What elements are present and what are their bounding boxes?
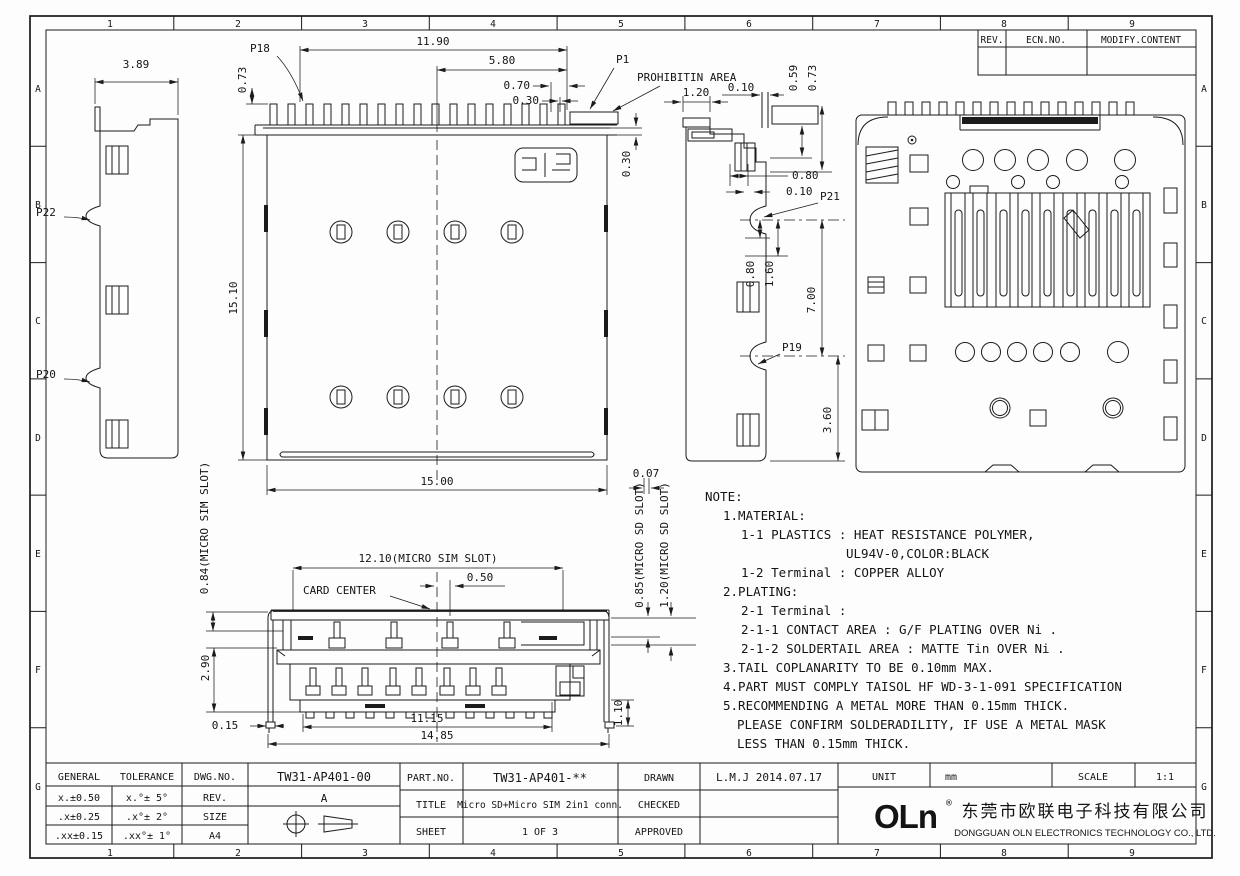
tb-size-value: A4	[209, 831, 221, 842]
zone-col: 1	[107, 848, 113, 859]
zone-row: A	[35, 84, 41, 95]
tb-drawn-value: L.M.J 2014.07.17	[716, 771, 822, 784]
label-p18: P18	[250, 42, 270, 55]
note-line: 1.MATERIAL:	[723, 508, 806, 523]
dim-r700: 7.00	[805, 287, 818, 314]
zone-col: 7	[874, 19, 880, 30]
tb-dwg-label: DWG.NO.	[194, 772, 236, 783]
zone-row: C	[1201, 316, 1207, 327]
label-p19: P19	[782, 341, 802, 354]
logo-registered-mark: ®	[946, 798, 952, 809]
tb-tolerance: TOLERANCE	[120, 772, 174, 783]
dim-sim-width: 12.10(MICRO SIM SLOT)	[358, 552, 497, 565]
zone-row: G	[1201, 782, 1207, 793]
dim-f007: 0.07	[633, 467, 660, 480]
tb-sheet-value: 1 OF 3	[522, 827, 558, 838]
engineering-drawing: 1 2 3 4 5 6 7 8 9 1 2 3 4 5 6 7 8 9 A B …	[0, 0, 1240, 876]
prohibit-hatch-side	[683, 118, 710, 127]
mount-pads	[862, 155, 1177, 440]
tb-general: GENERAL	[58, 772, 100, 783]
dim-r080b: 0.80	[744, 261, 757, 288]
view-bottom	[856, 102, 1185, 472]
tb-checked-label: CHECKED	[638, 800, 680, 811]
zone-col: 3	[362, 19, 368, 30]
zone-row: F	[1201, 665, 1207, 676]
zone-row: D	[35, 433, 41, 444]
tb-unit-value: mm	[945, 772, 957, 783]
note-line: PLEASE CONFIRM SOLDERADILITY, IF USE A M…	[737, 717, 1106, 732]
dim-hatch-width: 1.20	[683, 86, 710, 99]
note-line: 3.TAIL COPLANARITY TO BE 0.10mm MAX.	[723, 660, 994, 675]
zone-labels-left: A B C D E F G	[35, 84, 41, 793]
dim-pin-half: 5.80	[489, 54, 516, 67]
note-line: 2-1 Terminal :	[741, 603, 846, 618]
contact-holes-upper	[947, 150, 1136, 189]
zone-row: E	[1201, 549, 1207, 560]
zone-row: F	[35, 665, 41, 676]
tb-sheet-label: SHEET	[416, 827, 446, 838]
sim-pins	[329, 622, 515, 648]
terminal-block	[945, 186, 1150, 307]
logo-text: OLn	[874, 798, 937, 835]
dim-f1115: 11.15	[410, 712, 443, 725]
zone-col: 3	[362, 848, 368, 859]
zone-col: 8	[1001, 19, 1007, 30]
dim-pin-a: 0.70	[504, 79, 531, 92]
ecn-header: ECN.NO.	[1026, 35, 1066, 46]
tb-title-label: TITLE	[416, 800, 446, 811]
view-front: 12.10(MICRO SIM SLOT) 0.50 CARD CENTER 0…	[198, 462, 696, 748]
zone-col: 7	[874, 848, 880, 859]
dim-pin-b: 0.30	[513, 94, 540, 107]
zone-labels-right: A B C D E F G	[1201, 84, 1207, 793]
dim-body-height: 15.10	[227, 281, 240, 314]
dim-h059: 0.59	[787, 65, 800, 92]
view-right-side: 1.20 0.10 0.59 0.73 0.80 0.10 P21 0.80 1…	[664, 65, 845, 461]
title-block: GENERAL TOLERANCE x.±0.50 x.°± 5° .x±0.2…	[46, 763, 1216, 844]
dim-f015: 0.15	[212, 719, 239, 732]
tb-drawn-label: DRAWN	[644, 773, 674, 784]
prohibit-hatch-top	[570, 112, 618, 124]
edge-notches	[264, 205, 608, 435]
dim-edge-030: 0.30	[620, 151, 633, 178]
dim-r080a: 0.80	[792, 169, 819, 182]
tb-scale-label: SCALE	[1078, 772, 1108, 783]
drawing-sheet: 1 2 3 4 5 6 7 8 9 1 2 3 4 5 6 7 8 9 A B …	[0, 0, 1240, 876]
tb-tol-lin1: x.±0.50	[58, 793, 100, 804]
note-line: 2-1-1 CONTACT AREA : G/F PLATING OVER Ni…	[741, 622, 1057, 637]
company-logo: OLn ® 东莞市欧联电子科技有限公司 DONGGUAN OLN ELECTRO…	[874, 798, 1216, 839]
note-line: 2.PLATING:	[723, 584, 798, 599]
dim-off050: 0.50	[467, 571, 494, 584]
view-left-side: 3.89 P22 P20	[36, 58, 178, 458]
plan-holes	[330, 221, 523, 408]
notes-block: NOTE: 1.MATERIAL: 1-1 PLASTICS : HEAT RE…	[705, 489, 1122, 751]
dim-f1485: 14.85	[420, 729, 453, 742]
zone-col: 6	[746, 848, 752, 859]
note-line: NOTE:	[705, 489, 743, 504]
zone-row: G	[35, 782, 41, 793]
dim-hatch-gap: 0.10	[728, 81, 755, 94]
modify-header: MODIFY.CONTENT	[1101, 35, 1181, 46]
zone-col: 6	[746, 19, 752, 30]
dim-sd-height1: 0.85(MICRO SD SLOT)	[633, 482, 646, 608]
zone-row: A	[1201, 84, 1207, 95]
note-line: 2-1-2 SOLDERTAIL AREA : MATTE Tin OVER N…	[741, 641, 1065, 656]
zone-row: B	[1201, 200, 1207, 211]
zone-col: 1	[107, 19, 113, 30]
tb-tol-ang2: .x°± 2°	[126, 812, 168, 823]
sheet-border: 1 2 3 4 5 6 7 8 9 1 2 3 4 5 6 7 8 9 A B …	[30, 16, 1212, 859]
dim-left-width: 3.89	[123, 58, 150, 71]
note-line: 1-1 PLASTICS : HEAT RESISTANCE POLYMER,	[741, 527, 1035, 542]
zone-row: D	[1201, 433, 1207, 444]
card-stop-band	[962, 117, 1098, 124]
tb-scale-value: 1:1	[1156, 772, 1174, 783]
tb-size-label: SIZE	[203, 812, 227, 823]
dim-pin-span: 11.90	[416, 35, 449, 48]
note-line: 4.PART MUST COMPLY TAISOL HF WD-3-1-091 …	[723, 679, 1122, 694]
tb-part-label: PART.NO.	[407, 773, 455, 784]
dim-body-width: 15.00	[420, 475, 453, 488]
label-card-center: CARD CENTER	[303, 584, 376, 597]
dim-r160: 1.60	[763, 261, 776, 288]
projection-symbol	[283, 811, 358, 837]
tb-approved-label: APPROVED	[635, 827, 683, 838]
dim-r010: 0.10	[786, 185, 813, 198]
view-plan: 11.90 5.80 0.70 0.30 0.73 P18 P1 PROHIBI…	[227, 35, 737, 495]
zone-col: 5	[618, 848, 624, 859]
tb-tol-ang3: .xx°± 1°	[123, 831, 171, 842]
label-p21: P21	[820, 190, 840, 203]
note-line: LESS THAN 0.15mm THICK.	[737, 736, 910, 751]
tb-part-no: TW31-AP401-**	[493, 771, 587, 785]
label-p20: P20	[36, 368, 56, 381]
eject-spring	[866, 147, 898, 183]
zone-col: 2	[235, 19, 241, 30]
zone-labels-top: 1 2 3 4 5 6 7 8 9	[107, 19, 1135, 30]
zone-row: C	[35, 316, 41, 327]
sd-pins	[306, 668, 506, 695]
label-prohibit-area: PROHIBITIN AREA	[637, 71, 737, 84]
tb-t ol-lin3: .xx±0.15	[55, 831, 103, 842]
dim-pin-height: 0.73	[236, 67, 249, 94]
label-p22: P22	[36, 206, 56, 219]
dim-sim-height: 0.84(MICRO SIM SLOT)	[198, 462, 211, 594]
note-line: 5.RECOMMENDING A METAL MORE THAN 0.15mm …	[723, 698, 1069, 713]
dim-f290: 2.90	[199, 655, 212, 682]
tb-title-value: Micro SD+Micro SIM 2in1 conn.	[457, 800, 623, 811]
note-line: UL94V-0,COLOR:BLACK	[846, 546, 989, 561]
zone-col: 5	[618, 19, 624, 30]
rev-header: REV.	[981, 35, 1004, 46]
dim-f110: 1.10	[612, 700, 625, 727]
zone-col: 8	[1001, 848, 1007, 859]
company-name-en: DONGGUAN OLN ELECTRONICS TECHNOLOGY CO.,…	[954, 828, 1216, 839]
dim-h073: 0.73	[806, 65, 819, 92]
revision-table: REV. ECN.NO. MODIFY.CONTENT	[978, 30, 1196, 75]
dim-sd-height2: 1.20(MICRO SD SLOT)	[658, 482, 671, 608]
tb-dwg-no: TW31-AP401-00	[277, 770, 371, 784]
card-detect-feature	[515, 148, 577, 182]
zone-row: E	[35, 549, 41, 560]
zone-col: 4	[490, 848, 496, 859]
label-p1: P1	[616, 53, 629, 66]
zone-col: 4	[490, 19, 496, 30]
tb-rev-value: A	[321, 792, 328, 805]
zone-col: 9	[1129, 19, 1135, 30]
zone-col: 2	[235, 848, 241, 859]
note-line: 1-2 Terminal : COPPER ALLOY	[741, 565, 945, 580]
dim-r360: 3.60	[821, 407, 834, 434]
tb-tol-lin2: .x±0.25	[58, 812, 100, 823]
tb-tol-ang1: x.°± 5°	[126, 793, 168, 804]
zone-col: 9	[1129, 848, 1135, 859]
tb-unit-label: UNIT	[872, 772, 896, 783]
company-name-cn: 东莞市欧联电子科技有限公司	[962, 802, 1209, 821]
contact-holes-lower	[956, 342, 1129, 427]
tb-rev-label: REV.	[203, 793, 227, 804]
